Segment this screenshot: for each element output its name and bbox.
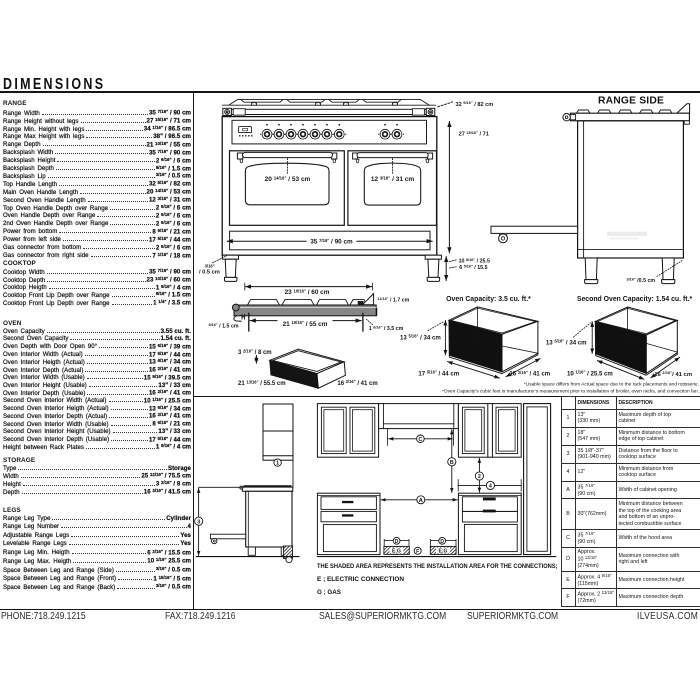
svg-text:11/16" / 1.7 cm: 11/16" / 1.7 cm bbox=[377, 297, 409, 304]
svg-text:10 5/16" / 25.5: 10 5/16" / 25.5 bbox=[459, 258, 490, 265]
svg-text:13 5/16" / 34 cm: 13 5/16" / 34 cm bbox=[400, 334, 441, 342]
svg-text:21 13/16" / 55.5 cm: 21 13/16" / 55.5 cm bbox=[238, 379, 286, 387]
svg-text:E ; ELECTRIC CONNECTION: E ; ELECTRIC CONNECTION bbox=[317, 576, 405, 583]
svg-text:16 2/16"/ 41 cm: 16 2/16"/ 41 cm bbox=[654, 370, 692, 378]
svg-text:16 2/16" / 41 cm: 16 2/16" / 41 cm bbox=[509, 370, 550, 378]
svg-text:21 10/16" / 55 cm: 21 10/16" / 55 cm bbox=[283, 320, 328, 328]
svg-text:32 5/16" / 82 cm: 32 5/16" / 82 cm bbox=[456, 100, 494, 108]
svg-text:20 14/16" / 53 cm: 20 14/16" / 53 cm bbox=[265, 175, 311, 183]
svg-text:*Usable space differs from Act: *Usable space differs from Actual space … bbox=[524, 381, 699, 387]
svg-text:/ 0.5 cm: / 0.5 cm bbox=[199, 270, 220, 276]
svg-text:Oven Capacity: 3.5 cu. ft.*: Oven Capacity: 3.5 cu. ft.* bbox=[446, 296, 531, 303]
svg-text:*Oven Capacity's cubic feet is: *Oven Capacity's cubic feet is manufactu… bbox=[442, 389, 699, 395]
svg-text:C: C bbox=[418, 437, 422, 443]
svg-text:Second Oven Capacity: 1.54 cu.: Second Oven Capacity: 1.54 cu. ft.* bbox=[577, 296, 693, 303]
svg-text:F: F bbox=[416, 549, 419, 555]
svg-text:4: 4 bbox=[489, 483, 492, 489]
svg-text:D: D bbox=[440, 539, 444, 545]
svg-text:3: 3 bbox=[197, 519, 200, 525]
svg-text:3 2/16" / 8 cm: 3 2/16" / 8 cm bbox=[238, 348, 272, 356]
svg-text:3/16": 3/16" bbox=[205, 264, 215, 269]
svg-text:9/16" / 1.5 cm: 9/16" / 1.5 cm bbox=[209, 323, 239, 330]
svg-text:RANGE SIDE: RANGE SIDE bbox=[598, 96, 664, 107]
svg-text:17 5/16" / 44 cm: 17 5/16" / 44 cm bbox=[418, 370, 459, 378]
svg-text:E;G: E;G bbox=[392, 549, 401, 555]
svg-text:A: A bbox=[419, 498, 423, 504]
svg-text:6 5/16" / 15.5: 6 5/16" / 15.5 bbox=[459, 265, 487, 272]
svg-text:B: B bbox=[450, 460, 454, 466]
svg-text:1: 1 bbox=[276, 461, 279, 467]
svg-text:35 7/16" / 90 cm: 35 7/16" / 90 cm bbox=[310, 238, 353, 246]
svg-text:2: 2 bbox=[478, 474, 481, 480]
svg-text:16 2/16" / 41 cm: 16 2/16" / 41 cm bbox=[337, 379, 377, 387]
svg-text:13 5/16" / 34 cm: 13 5/16" / 34 cm bbox=[546, 339, 587, 347]
svg-text:3/16" /0.5 cm: 3/16" /0.5 cm bbox=[627, 277, 656, 284]
svg-text:THE SHADED AREA REPRESENTS THE: THE SHADED AREA REPRESENTS THE INSTALLAT… bbox=[317, 563, 558, 570]
svg-text:1 6/16" / 3.5 cm: 1 6/16" / 3.5 cm bbox=[369, 326, 404, 333]
svg-text:12 3/16" / 31 cm: 12 3/16" / 31 cm bbox=[371, 175, 415, 183]
svg-text:G ; GAS: G ; GAS bbox=[317, 589, 341, 596]
svg-text:10 1/16" / 25.5 cm: 10 1/16" / 25.5 cm bbox=[567, 370, 613, 378]
svg-text:23 10/16" / 60 cm: 23 10/16" / 60 cm bbox=[285, 288, 330, 296]
svg-text:27 15/16" / 71: 27 15/16" / 71 bbox=[459, 130, 489, 138]
svg-text:E;G: E;G bbox=[439, 549, 448, 555]
svg-text:D: D bbox=[395, 539, 399, 545]
